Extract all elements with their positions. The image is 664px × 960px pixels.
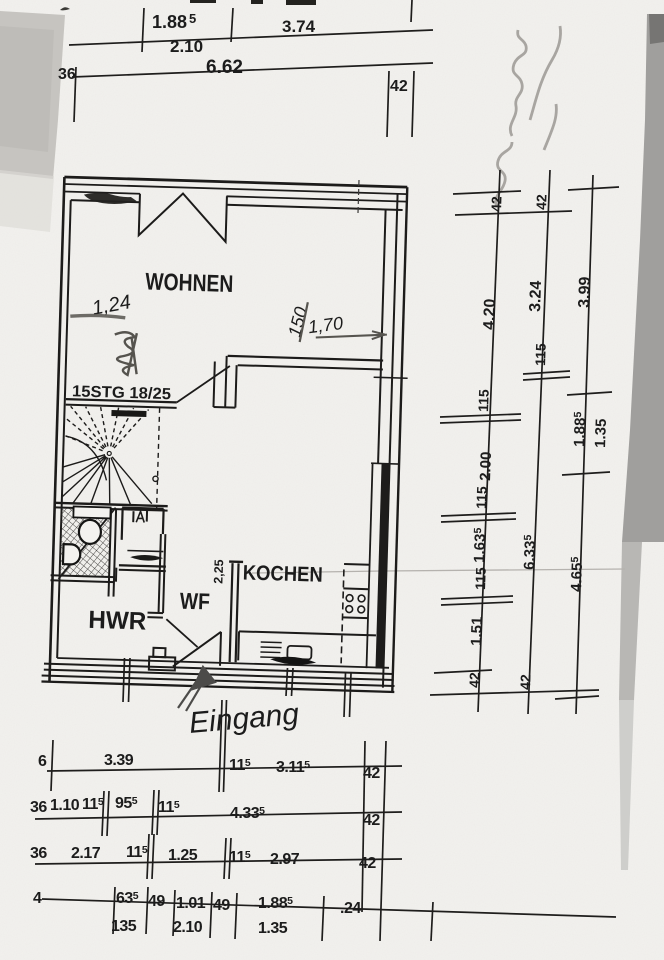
svg-text:5: 5 xyxy=(189,11,196,26)
svg-text:2.00: 2.00 xyxy=(477,451,495,481)
svg-text:42: 42 xyxy=(363,812,380,829)
svg-text:3.39: 3.39 xyxy=(104,752,134,769)
svg-text:42: 42 xyxy=(488,196,505,212)
svg-text:115: 115 xyxy=(473,486,490,509)
svg-text:HWR: HWR xyxy=(88,606,147,636)
svg-text:135: 135 xyxy=(111,918,137,935)
svg-text:2.10: 2.10 xyxy=(170,37,203,56)
svg-text:2.97: 2.97 xyxy=(270,851,300,868)
svg-text:15STG 18/25: 15STG 18/25 xyxy=(72,383,172,403)
svg-text:42: 42 xyxy=(359,855,376,872)
svg-text:115: 115 xyxy=(532,343,549,366)
svg-text:115: 115 xyxy=(475,389,492,412)
svg-text:1.01: 1.01 xyxy=(176,895,206,912)
svg-text:6: 6 xyxy=(38,753,47,770)
svg-text:42: 42 xyxy=(533,194,550,210)
svg-text:42: 42 xyxy=(363,765,380,782)
svg-text:KOCHEN: KOCHEN xyxy=(242,561,323,586)
svg-text:49: 49 xyxy=(148,893,165,910)
svg-text:36: 36 xyxy=(30,799,47,816)
svg-text:3.24: 3.24 xyxy=(527,280,545,312)
svg-text:1.35: 1.35 xyxy=(592,418,610,448)
svg-text:3.74: 3.74 xyxy=(282,17,316,36)
svg-text:1.88: 1.88 xyxy=(152,12,187,32)
svg-text:49: 49 xyxy=(213,897,230,914)
svg-text:2.17: 2.17 xyxy=(71,845,101,862)
svg-text:1.51: 1.51 xyxy=(468,616,486,646)
svg-text:3.99: 3.99 xyxy=(576,276,594,308)
svg-text:1.10: 1.10 xyxy=(50,797,80,814)
svg-text:.24: .24 xyxy=(340,900,361,917)
svg-text:4: 4 xyxy=(33,890,42,907)
svg-text:4.20: 4.20 xyxy=(481,298,499,330)
svg-text:2.10: 2.10 xyxy=(173,919,203,936)
svg-text:36: 36 xyxy=(30,845,47,862)
svg-text:42: 42 xyxy=(390,78,408,95)
svg-text:42: 42 xyxy=(517,674,534,690)
svg-text:WOHNEN: WOHNEN xyxy=(145,268,234,298)
svg-text:WF: WF xyxy=(180,588,211,615)
svg-text:36: 36 xyxy=(58,66,76,83)
svg-text:1.35: 1.35 xyxy=(258,920,288,937)
svg-text:6.62: 6.62 xyxy=(206,57,243,78)
svg-text:42: 42 xyxy=(466,672,483,688)
svg-text:115: 115 xyxy=(472,567,489,590)
svg-text:1.25: 1.25 xyxy=(168,847,198,864)
svg-text:2,25: 2,25 xyxy=(211,559,226,584)
